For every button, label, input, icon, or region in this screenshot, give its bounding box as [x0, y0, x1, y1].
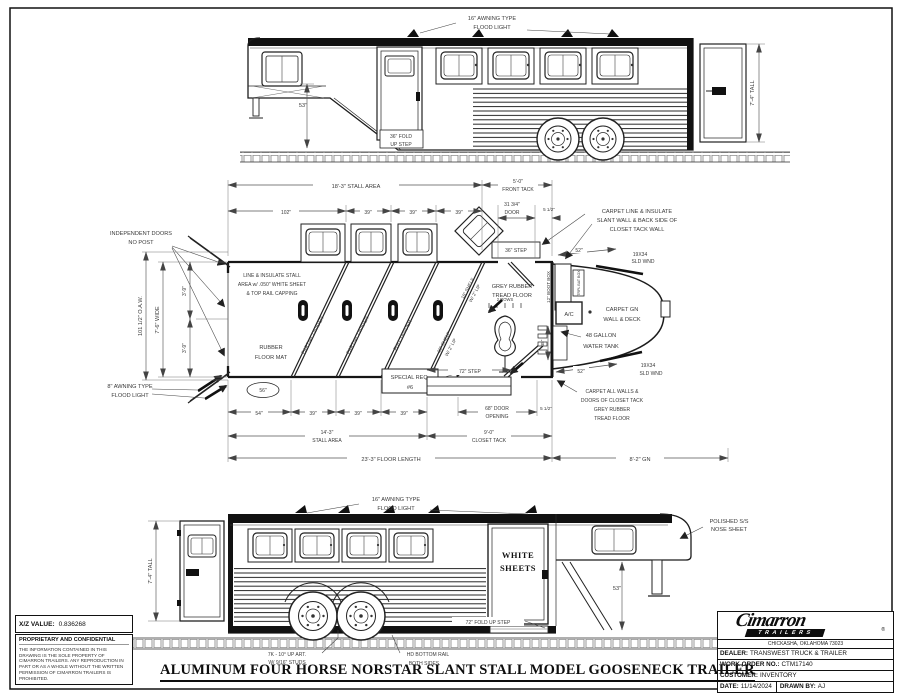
fold-step-2-label: 72" FOLD UP STEP — [466, 620, 511, 626]
flood-light-label-1: 16" AWNING TYPE — [468, 16, 517, 22]
dim-53-2-label: 53" — [613, 586, 621, 592]
grey-rubber-label-1: GREY RUBBER — [492, 284, 533, 290]
carpet-line-label-1: CARPET LINE & INSULATE — [602, 209, 673, 215]
dim-front-tack-2: FRONT TACK — [502, 187, 534, 193]
date-value: 11/14/2024 — [741, 682, 772, 692]
dim-step72: 72" STEP — [459, 369, 481, 375]
dim-56-label: 56" — [259, 388, 267, 394]
grey-rubber-label-2: TREAD FLOOR — [492, 293, 532, 299]
stall-windows-2 — [248, 526, 636, 562]
nose-label-2: NOSE SHEET — [711, 527, 748, 533]
wnd-top-label-2: SLD WND — [631, 259, 654, 265]
carpet-line-callout: CARPET LINE & INSULATE SLANT WALL & BACK… — [543, 209, 678, 258]
date-label: DATE: — [720, 682, 739, 692]
brand-logo: Cimarron TRAILERS ® — [718, 612, 893, 639]
trailer-drawing: 16" AWNING TYPE FLOOD LIGHT 53" 36" FOLD… — [0, 0, 900, 696]
dim-39ft-a: 3'-9" — [182, 286, 188, 296]
divider-label-2: PARTIAL DIVIDER — [346, 315, 371, 355]
special-req-label-1: SPECIAL REQ. — [391, 375, 430, 381]
dim-52-top: 52" — [575, 248, 583, 254]
drawing-title-text: ALUMINUM FOUR HORSE NORSTAR SLANT STALL … — [160, 662, 755, 682]
dim-53-label: 53" — [299, 103, 307, 109]
carpet-all-callout: CARPET ALL WALLS & DOORS OF CLOSET TACK … — [558, 381, 644, 422]
dim-39-a: 39" — [364, 210, 372, 216]
water-tank-label-2: WATER TANK — [583, 344, 619, 350]
rear-door-leaves — [188, 236, 230, 403]
carpet-gn-label-1: CARPET GN — [606, 307, 639, 313]
dim-5h-top: 5 1/2" — [543, 207, 555, 212]
gn-window-2 — [592, 526, 636, 554]
plan-windows — [301, 207, 503, 262]
carpet-all-label-1: CARPET ALL WALLS & — [586, 389, 640, 395]
confidential-title: PROPRIETARY AND CONFIDENTIAL — [19, 637, 129, 645]
fold-step-label-2: UP STEP — [390, 142, 412, 148]
work-order-value: CTM17140 — [781, 660, 812, 670]
dim-52-bottom: 52" — [577, 369, 585, 375]
dim-closet-tack-1: 9'-0" — [484, 430, 494, 436]
awning8-label-1: 8" AWNING TYPE — [107, 384, 152, 390]
flood-light-callout: 16" AWNING TYPE FLOOD LIGHT — [420, 16, 610, 34]
line-insulate-label-2: AREA w/ .050" WHITE SHEET — [238, 282, 306, 288]
carpet-line-label-3: CLOSET TACK WALL — [610, 227, 665, 233]
open-rear-door — [700, 44, 746, 142]
confidential-box: PROPRIETARY AND CONFIDENTIAL THE INFORMA… — [15, 634, 133, 685]
dim-door-2: DOOR — [505, 210, 520, 216]
dim-39ft-b: 3'-9" — [182, 343, 188, 353]
dim-39-c: 39" — [455, 210, 463, 216]
dim-door-1: 31 3/4" — [504, 202, 520, 208]
wnd-top-label-1: 19X34 — [633, 252, 648, 258]
independent-doors-label-2: NO POST — [128, 240, 154, 246]
dim-stall-bottom-1: 14'-3" — [321, 430, 334, 436]
rail-label-1: HD BOTTOM RAIL — [407, 652, 450, 658]
wnd-bottom-label-2: SLD WND — [639, 371, 662, 377]
dim-7-4-tall: 7'-4" TALL — [746, 44, 765, 142]
xz-value: 0.836268 — [59, 621, 86, 628]
awning8-label-2: FLOOD LIGHT — [111, 393, 149, 399]
flood-light2-label-2: FLOOD LIGHT — [377, 506, 415, 512]
dim-53-2: 53" — [613, 562, 622, 630]
registered-mark-icon: ® — [881, 627, 885, 633]
step-36-label: 36" STEP — [505, 248, 527, 254]
dealer-label: DEALER: — [720, 649, 748, 659]
gooseneck-deck-details: 12" BOOT BOX TRPL BAT BOX A/C CARPET GN … — [540, 264, 641, 360]
dim-door-opening-2: OPENING — [485, 414, 508, 420]
dealer-row: DEALER: TRANSWEST TRUCK & TRAILER — [718, 648, 893, 659]
top-view-elevation: 16" AWNING TYPE FLOOD LIGHT 53" 36" FOLD… — [240, 16, 790, 162]
dim-39-e: 39" — [354, 411, 362, 417]
bottom-view-elevation: WHITE SHEETS 16" AWNING TYPE — [85, 497, 749, 667]
white-sheets-label-2: SHEETS — [500, 563, 536, 573]
divider-label-3: FULL DIVIDER — [393, 319, 414, 352]
dim-tall-2-label: 7'-4" TALL — [148, 558, 154, 584]
dim-stall-bottom-2: STALL AREA — [312, 438, 342, 444]
info-block: X/Z VALUE: 0.836268 PROPRIETARY AND CONF… — [15, 615, 133, 685]
studs-label-1: 7K - 10° UP ART. — [268, 652, 306, 658]
dim-5h-bottom: 5 1/2" — [540, 406, 552, 411]
white-sheets-label-1: WHITE — [502, 550, 534, 560]
brand-address: CHICKASHA, OKLAHOMA 73023 — [718, 639, 893, 648]
step-and-door-opening: 72" STEP — [427, 366, 511, 395]
boot-box-label: 12" BOOT BOX — [546, 271, 551, 303]
date-row: DATE: 11/14/2024 DRAWN BY: AJ — [718, 681, 893, 692]
carpet-line-label-2: SLANT WALL & BACK SIDE OF — [597, 218, 678, 224]
dim-closet-tack-2: CLOSET TACK — [472, 438, 507, 444]
fold-up-step-callout: 36" FOLD UP STEP — [380, 130, 423, 148]
confidential-text: THE INFORMATION CONTAINED IN THIS DRAWIN… — [19, 647, 129, 681]
brand-sub: TRAILERS — [745, 629, 825, 637]
dim-wide: 7'-6" WIDE — [155, 306, 161, 334]
rubber-mat-label-1: RUBBER — [259, 345, 282, 351]
independent-doors-label-1: INDEPENDENT DOORS — [110, 231, 172, 237]
dim-oaw: 101 1/2" O.A.W. — [138, 296, 144, 336]
carpet-gn-label-2: WALL & DECK — [603, 317, 640, 323]
line-insulate-label-3: & TOP RAIL CAPPING — [247, 291, 298, 297]
wnd-bottom-label-1: 19X34 — [641, 363, 656, 369]
ac-label: A/C — [564, 312, 573, 318]
open-rear-door-2 — [177, 521, 224, 621]
dim-53-gooseneck: 53" — [299, 84, 314, 148]
ground-line — [240, 152, 790, 162]
dim-7-4-tall-2: 7'-4" TALL — [148, 521, 180, 621]
drawing-title: ALUMINUM FOUR HORSE NORSTAR SLANT STALL … — [160, 661, 730, 682]
dim-tall-label: 7'-4" TALL — [750, 80, 756, 106]
carpet-all-label-3: GREY RUBBER — [594, 407, 631, 413]
gooseneck-supports — [562, 560, 670, 630]
fold-step-label-1: 36" FOLD — [390, 134, 412, 140]
divider-label-1: PARTIAL DIVIDER — [301, 315, 326, 355]
nose-label-1: POLISHED S/S — [710, 519, 749, 525]
side-entry-door — [377, 47, 422, 140]
dim-floor-length: 23'-3" FLOOR LENGTH — [361, 457, 420, 463]
carpet-all-label-4: TREAD FLOOR — [594, 416, 630, 422]
stall-windows — [436, 48, 638, 84]
rubber-mat-label-2: FLOOR MAT — [255, 355, 288, 361]
dim-39-b: 39" — [409, 210, 417, 216]
dim-38-label: 38" — [540, 339, 545, 346]
flood-light2-label-1: 16" AWNING TYPE — [372, 497, 421, 503]
dim-102: 102" — [281, 210, 291, 216]
stall-dividers: PARTIAL DIVIDER PARTIAL DIVIDER FULL DIV… — [291, 262, 485, 377]
line-insulate-label-1: LINE & INSULATE STALL — [243, 273, 301, 279]
xz-label: X/Z VALUE: — [19, 621, 55, 628]
floor-plan: PARTIAL DIVIDER PARTIAL DIVIDER FULL DIV… — [107, 176, 728, 463]
dealer-value: TRANSWEST TRUCK & TRAILER — [750, 649, 847, 659]
dim-39-f: 39" — [400, 411, 408, 417]
water-tank-label-1: 48 GALLON — [586, 333, 616, 339]
xz-value-row: X/Z VALUE: 0.836268 — [15, 615, 133, 633]
dim-front-tack-1: 5'-0" — [513, 179, 523, 185]
drawn-by-label: DRAWN BY: — [780, 682, 816, 692]
carpet-all-label-2: DOORS OF CLOSET TACK — [581, 398, 644, 404]
bat-box-label: TRPL BAT BOX — [577, 270, 581, 296]
dim-gn: 8'-2" GN — [629, 457, 650, 463]
special-req-label-2: #6 — [407, 385, 413, 391]
dim-39-d: 39" — [309, 411, 317, 417]
customer-value: INVENTORY — [760, 671, 797, 681]
flood-light-label-2: FLOOD LIGHT — [473, 25, 511, 31]
dim-stall-area-top: 18'-3" STALL AREA — [332, 184, 381, 190]
gooseneck-window — [262, 52, 302, 86]
white-sheets-door: WHITE SHEETS — [488, 524, 548, 633]
drawn-by-value: AJ — [818, 682, 825, 692]
dim-door-opening-1: 68" DOOR — [485, 406, 509, 412]
dim-54: 54" — [255, 411, 263, 417]
ground-line-2 — [85, 638, 720, 649]
